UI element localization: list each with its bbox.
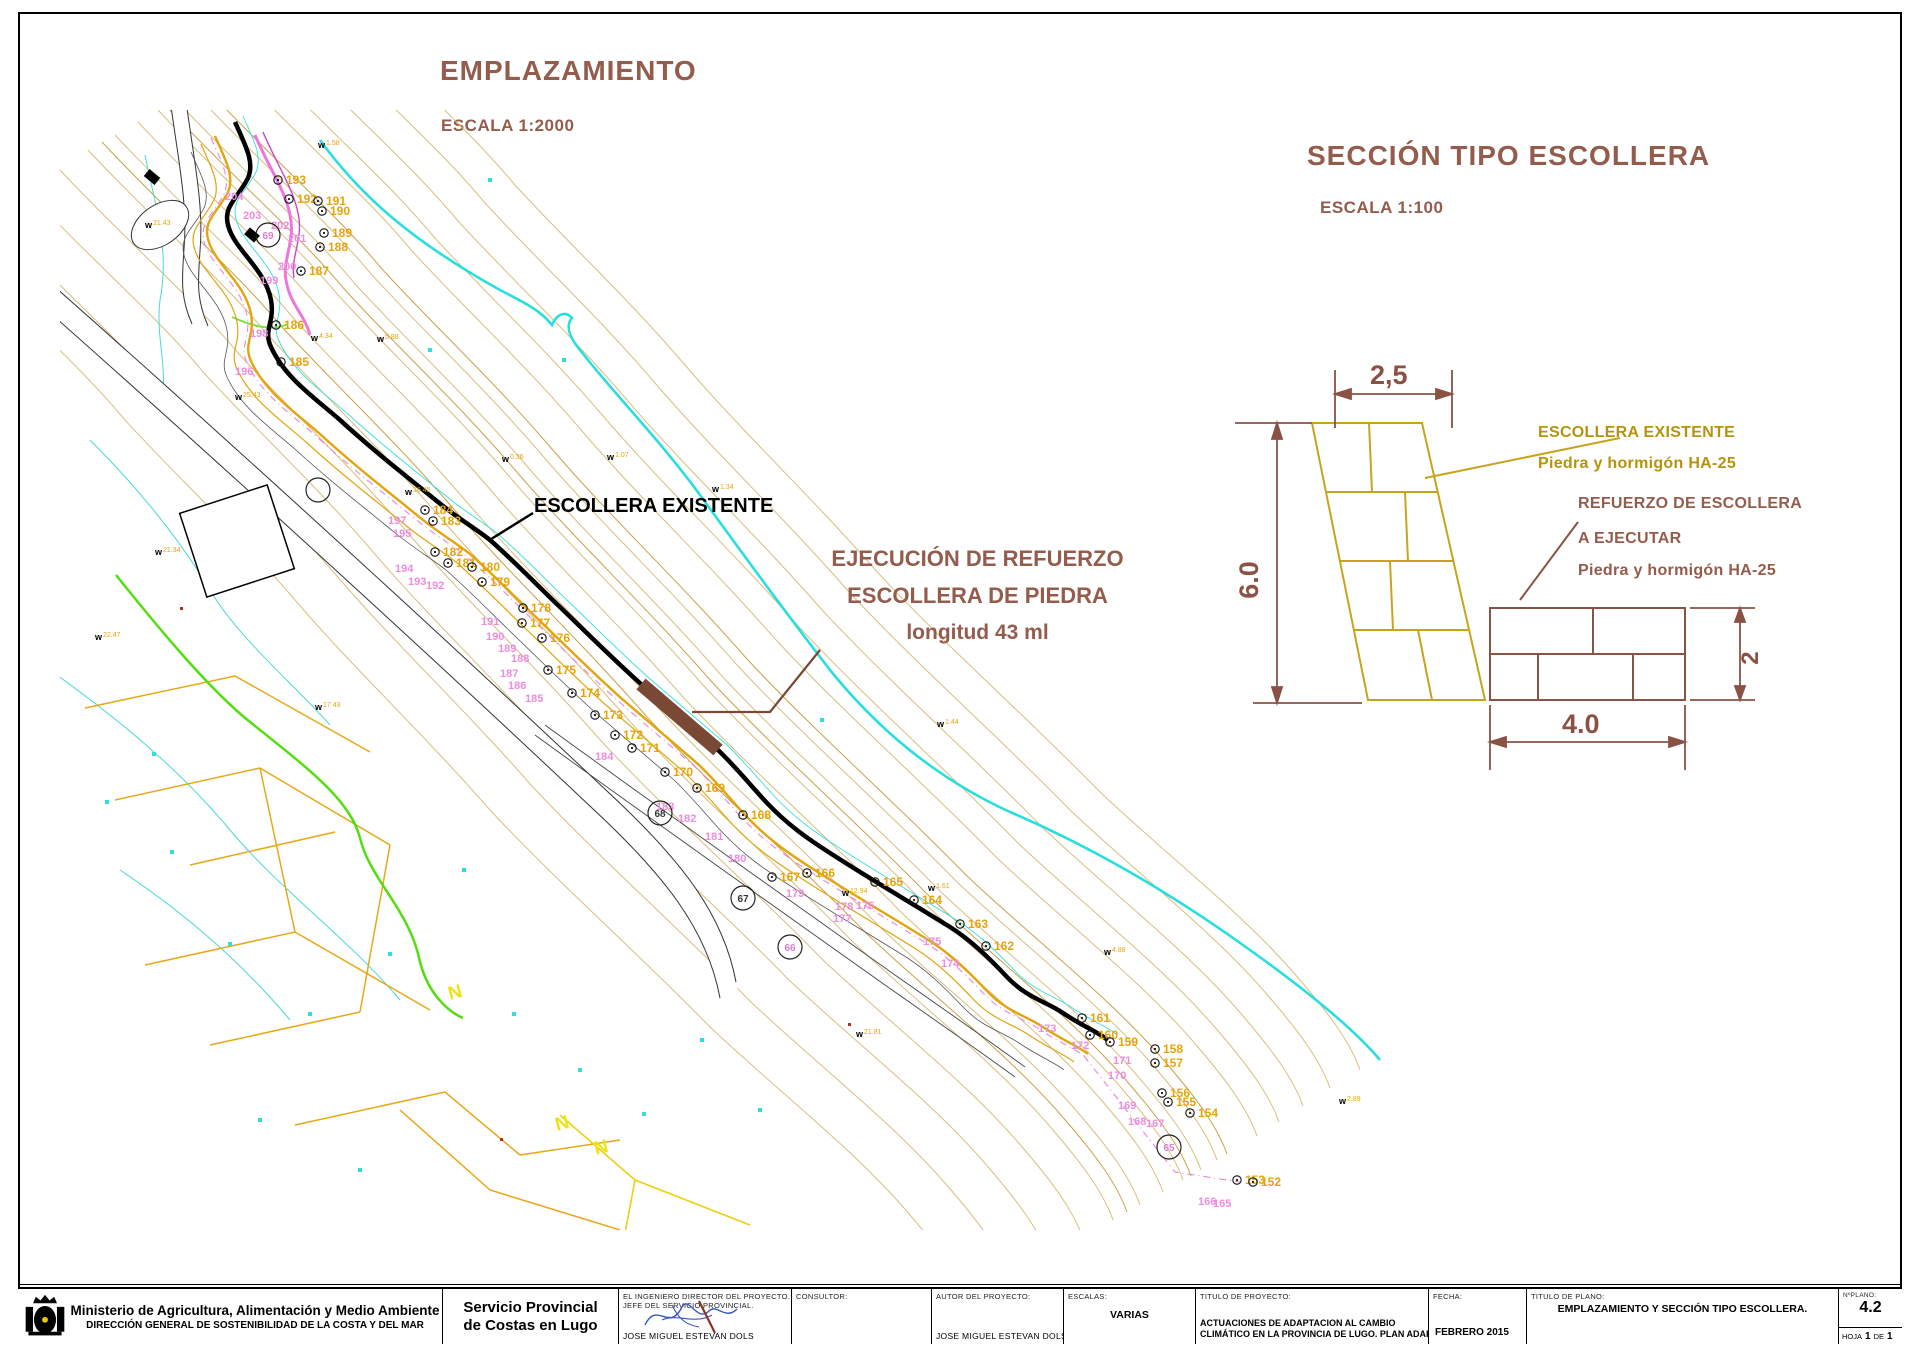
plano-num: 4.2 xyxy=(1839,1299,1902,1317)
profile-point-label: 168 xyxy=(1128,1116,1146,1128)
svg-text:152: 152 xyxy=(1261,1175,1281,1189)
svg-text:w: w xyxy=(317,140,326,150)
svg-text:w: w xyxy=(606,452,615,462)
callout-line1: EJECUCIÓN DE REFUERZO xyxy=(785,540,1170,577)
svg-text:w: w xyxy=(94,632,103,642)
survey-points-layer: 1931921911901891881871861851841831821811… xyxy=(94,140,1361,1210)
escalas-label: ESCALAS: xyxy=(1068,1292,1107,1301)
svg-text:21.34: 21.34 xyxy=(163,547,181,554)
svg-text:w: w xyxy=(927,883,936,893)
elevation-mark: w21.81 xyxy=(855,1029,882,1039)
profile-point-label: 203 xyxy=(243,210,261,222)
callout-line2: ESCOLLERA DE PIEDRA xyxy=(785,577,1170,614)
profile-point-label: 187 xyxy=(500,668,518,680)
svg-text:162: 162 xyxy=(994,939,1014,953)
profile-point-label: 176 xyxy=(856,900,874,912)
elevation-mark: w1.44 xyxy=(936,719,959,729)
escalas-value: VARIAS xyxy=(1064,1309,1195,1321)
svg-text:180: 180 xyxy=(480,560,500,574)
svg-text:185: 185 xyxy=(289,355,309,369)
dim-small-height: 2 xyxy=(1737,651,1764,664)
cyan-dot xyxy=(228,942,232,946)
cyan-dot xyxy=(388,952,392,956)
svg-text:w: w xyxy=(376,334,385,344)
escollera-label-leader xyxy=(488,513,533,541)
profile-point-label: 172 xyxy=(1071,1040,1089,1052)
survey-point: 155 xyxy=(1164,1095,1197,1109)
autor-cell: AUTOR DEL PROYECTO: JOSE MIGUEL ESTEVAN … xyxy=(931,1289,1063,1344)
elevation-mark: w4.88 xyxy=(1103,947,1126,957)
cyan-dot xyxy=(105,800,109,804)
svg-text:190: 190 xyxy=(330,204,350,218)
consultor-cell: CONSULTOR: xyxy=(791,1289,931,1344)
autor-label: AUTOR DEL PROYECTO: xyxy=(936,1292,1030,1301)
n-mark: N xyxy=(553,1112,572,1136)
svg-text:4.34: 4.34 xyxy=(319,333,333,340)
profile-point-label: 177 xyxy=(833,913,851,925)
circled-point: 69 xyxy=(256,223,280,247)
svg-text:173: 173 xyxy=(603,708,623,722)
titulo-plano-cell: TITULO DE PLANO: EMPLAZAMIENTO Y SECCIÓN… xyxy=(1526,1289,1838,1344)
ministry-text: Ministerio de Agricultura, Alimentación … xyxy=(68,1303,442,1331)
profile-point-label: 180 xyxy=(728,853,746,865)
svg-text:0.36: 0.36 xyxy=(510,454,524,461)
cyan-dot xyxy=(428,348,432,352)
svg-text:164: 164 xyxy=(922,893,942,907)
survey-point: 175 xyxy=(544,663,577,677)
titulo-proyecto-cell: TITULO DE PROYECTO: ACTUACIONES DE ADAPT… xyxy=(1195,1289,1428,1344)
svg-text:w: w xyxy=(936,719,945,729)
svg-text:158: 158 xyxy=(1163,1042,1183,1056)
svg-text:163: 163 xyxy=(968,917,988,931)
profile-point-label: 185 xyxy=(525,693,543,705)
upper-road xyxy=(122,110,208,326)
survey-point: 190 xyxy=(318,204,351,218)
cyan-dot xyxy=(578,1068,582,1072)
svg-text:21.43: 21.43 xyxy=(153,220,171,227)
dim-height: 6.0 xyxy=(1234,561,1264,599)
svg-text:174: 174 xyxy=(580,686,600,700)
survey-point: 188 xyxy=(316,240,349,254)
svg-text:25.43: 25.43 xyxy=(243,392,261,399)
svg-text:165: 165 xyxy=(883,875,903,889)
profile-point-label: 188 xyxy=(511,653,529,665)
profile-point-label: 165 xyxy=(1213,1198,1231,1210)
cyan-dot xyxy=(512,1012,516,1016)
survey-point: 162 xyxy=(982,939,1015,953)
profile-point-label: 178 xyxy=(835,901,853,913)
svg-text:170: 170 xyxy=(673,765,693,779)
fecha-label: FECHA: xyxy=(1433,1292,1462,1301)
svg-text:154: 154 xyxy=(1198,1106,1218,1120)
svg-text:2.89: 2.89 xyxy=(1347,1096,1361,1103)
profile-point-label: 175 xyxy=(923,936,941,948)
svg-text:1.61: 1.61 xyxy=(936,883,950,890)
svg-text:157: 157 xyxy=(1163,1056,1183,1070)
autor-name: JOSE MIGUEL ESTEVAN DOLS xyxy=(936,1331,1063,1341)
svg-text:w: w xyxy=(310,333,319,343)
survey-point: 173 xyxy=(591,708,624,722)
svg-text:22.47: 22.47 xyxy=(103,632,121,639)
elevation-mark: w1.61 xyxy=(927,883,950,893)
n-mark: N xyxy=(592,1136,611,1160)
elevation-mark: w12.94 xyxy=(841,888,868,898)
circled-point: 67 xyxy=(731,886,755,910)
svg-text:66: 66 xyxy=(784,943,796,954)
svg-text:w: w xyxy=(1103,947,1112,957)
elevation-mark: w2.89 xyxy=(1338,1096,1361,1106)
elevation-mark: w4.34 xyxy=(310,333,333,343)
titleblock: Ministerio de Agricultura, Alimentación … xyxy=(18,1287,1902,1344)
svg-text:w: w xyxy=(314,702,323,712)
cyan-dot xyxy=(820,718,824,722)
profile-point-label: 199 xyxy=(260,275,278,287)
svg-text:160: 160 xyxy=(1098,1028,1118,1042)
survey-point: 171 xyxy=(628,741,661,755)
svg-text:w: w xyxy=(154,547,163,557)
profile-point-label: 174 xyxy=(941,958,960,970)
sec-existente-label1: ESCOLLERA EXISTENTE xyxy=(1538,424,1735,442)
profile-point-label: 169 xyxy=(1118,1100,1136,1112)
svg-text:159: 159 xyxy=(1118,1035,1138,1049)
sec-existente-label2: Piedra y hormigón HA-25 xyxy=(1538,455,1736,473)
svg-text:188: 188 xyxy=(328,240,348,254)
svg-text:161: 161 xyxy=(1090,1011,1110,1025)
svg-text:69: 69 xyxy=(262,231,274,242)
sec-refuerzo-label3: Piedra y hormigón HA-25 xyxy=(1578,562,1776,580)
svg-text:1.58: 1.58 xyxy=(326,140,340,147)
fecha-cell: FECHA: FEBRERO 2015 xyxy=(1428,1289,1526,1344)
svg-text:178: 178 xyxy=(531,601,551,615)
titleblock-upper-rule xyxy=(18,1284,1902,1285)
refuerzo-leader xyxy=(1520,522,1578,600)
section-detail-drawing: 2,5 6.0 2 4.0 xyxy=(1200,330,1820,770)
profile-point-label: 196 xyxy=(235,366,253,378)
profile-point-label: 198 xyxy=(250,328,268,340)
elevation-mark: w17.43 xyxy=(314,702,341,712)
svg-text:172: 172 xyxy=(623,728,643,742)
svg-text:193: 193 xyxy=(286,173,306,187)
svg-text:12.94: 12.94 xyxy=(850,888,868,895)
profile-point-label: 202 xyxy=(271,220,289,232)
titulo-proyecto-text: ACTUACIONES DE ADAPTACION AL CAMBIO CLIM… xyxy=(1200,1318,1428,1340)
callout-line3: longitud 43 ml xyxy=(785,614,1170,651)
svg-text:169: 169 xyxy=(705,781,725,795)
dim-top-width: 2,5 xyxy=(1370,360,1408,390)
survey-point: 176 xyxy=(538,631,571,645)
reinforcement-block xyxy=(1490,608,1685,700)
servicio-cell: Servicio Provincial de Costas en Lugo xyxy=(442,1289,618,1344)
survey-point: 167 xyxy=(768,870,801,884)
svg-text:175: 175 xyxy=(556,663,576,677)
survey-point: 189 xyxy=(320,226,353,240)
svg-text:171: 171 xyxy=(640,741,660,755)
svg-text:21.81: 21.81 xyxy=(864,1029,882,1036)
svg-text:168: 168 xyxy=(751,808,771,822)
profile-point-label: 193 xyxy=(408,576,426,588)
svg-text:w: w xyxy=(144,220,153,230)
parcel-lines-bright xyxy=(560,1115,750,1230)
cyan-dot xyxy=(170,850,174,854)
profile-point-label: 181 xyxy=(705,831,723,843)
cyan-dot xyxy=(258,1118,262,1122)
profile-point-label: 195 xyxy=(393,528,411,540)
profile-point-label: 204 xyxy=(225,191,244,203)
svg-text:w: w xyxy=(841,888,850,898)
red-dot xyxy=(500,1138,503,1141)
survey-point: 174 xyxy=(568,686,601,700)
cyan-dot xyxy=(642,1112,646,1116)
survey-point: 177 xyxy=(518,616,551,630)
profile-point-label: 191 xyxy=(481,616,499,628)
svg-text:w: w xyxy=(855,1029,864,1039)
svg-text:67: 67 xyxy=(737,894,749,905)
survey-point: 192 xyxy=(285,192,318,206)
profile-point-label: 197 xyxy=(388,515,406,527)
svg-text:167: 167 xyxy=(780,870,800,884)
servicio-line1: Servicio Provincial xyxy=(443,1299,618,1317)
titulo-plano-label: TITULO DE PLANO: xyxy=(1531,1292,1605,1301)
fecha-value: FEBRERO 2015 xyxy=(1435,1327,1509,1338)
map-title: EMPLAZAMIENTO xyxy=(440,55,697,87)
svg-text:65: 65 xyxy=(1163,1143,1175,1154)
svg-text:1.07: 1.07 xyxy=(615,452,629,459)
profile-point-label: 170 xyxy=(1108,1070,1126,1082)
hoja-total: 1 xyxy=(1887,1331,1893,1342)
elevation-mark: w25.43 xyxy=(234,392,261,402)
svg-text:166: 166 xyxy=(815,866,835,880)
plano-num-label: NºPLANO: xyxy=(1843,1292,1876,1299)
profile-point-label: 171 xyxy=(1113,1055,1131,1067)
elevation-mark: w21.34 xyxy=(154,547,181,557)
consultor-label: CONSULTOR: xyxy=(796,1292,847,1301)
existing-wall xyxy=(1312,423,1485,700)
cyan-dot xyxy=(758,1108,762,1112)
ministry-cell: Ministerio de Agricultura, Alimentación … xyxy=(18,1289,442,1344)
profile-point-label: 190 xyxy=(486,631,504,643)
elevation-mark: w1.07 xyxy=(606,452,629,462)
svg-text:176: 176 xyxy=(550,631,570,645)
svg-text:w: w xyxy=(501,454,510,464)
svg-text:68: 68 xyxy=(654,809,666,820)
red-dot xyxy=(180,607,183,610)
sec-refuerzo-label1: REFUERZO DE ESCOLLERA xyxy=(1578,495,1802,513)
elevation-mark: w1.34 xyxy=(711,484,734,494)
cyan-dot xyxy=(358,1168,362,1172)
titulo-proyecto-line1: ACTUACIONES DE ADAPTACION AL CAMBIO xyxy=(1200,1318,1428,1329)
hoja-row: HOJA 1 DE 1 xyxy=(1839,1327,1902,1344)
cyan-dot xyxy=(700,1038,704,1042)
ministry-direction: DIRECCIÓN GENERAL DE SOSTENIBILIDAD DE L… xyxy=(68,1320,442,1331)
cyan-dot xyxy=(308,1012,312,1016)
escalas-cell: ESCALAS: VARIAS xyxy=(1063,1289,1195,1344)
svg-text:w: w xyxy=(711,484,720,494)
n-mark: N xyxy=(446,981,465,1005)
titulo-proyecto-line2: CLIMÁTICO EN LA PROVINCIA DE LUGO. PLAN … xyxy=(1200,1329,1428,1340)
svg-text:16.45: 16.45 xyxy=(413,487,431,494)
svg-text:183: 183 xyxy=(441,514,461,528)
cyan-dot xyxy=(462,868,466,872)
map-escollera-label: ESCOLLERA EXISTENTE xyxy=(534,495,773,518)
svg-text:155: 155 xyxy=(1176,1095,1196,1109)
spain-coat-of-arms-icon xyxy=(22,1294,68,1340)
hoja-label: HOJA xyxy=(1842,1332,1862,1341)
profile-point-label: 173 xyxy=(1038,1023,1056,1035)
de-label: DE xyxy=(1874,1332,1884,1341)
servicio-line2: de Costas en Lugo xyxy=(443,1317,618,1335)
sec-refuerzo-label2: A EJECUTAR xyxy=(1578,530,1681,548)
svg-text:w: w xyxy=(234,392,243,402)
engineer-cell: EL INGENIERO DIRECTOR DEL PROYECTO. JEFE… xyxy=(618,1289,791,1344)
survey-point: 163 xyxy=(956,917,989,931)
profile-point-label: 192 xyxy=(426,580,444,592)
signature xyxy=(637,1295,757,1335)
red-dot xyxy=(848,1023,851,1026)
svg-text:189: 189 xyxy=(332,226,352,240)
engineer-name: JOSE MIGUEL ESTEVAN DOLS xyxy=(623,1331,754,1341)
map-refuerzo-callout: EJECUCIÓN DE REFUERZO ESCOLLERA DE PIEDR… xyxy=(785,540,1170,651)
elevation-mark: w0.36 xyxy=(501,454,524,464)
dim-bottom-width: 4.0 xyxy=(1562,709,1600,739)
main-road xyxy=(60,272,736,998)
svg-text:177: 177 xyxy=(530,616,550,630)
svg-text:17.43: 17.43 xyxy=(323,702,341,709)
cyan-dot xyxy=(152,752,156,756)
plano-number-cell: NºPLANO: 4.2 HOJA 1 DE 1 xyxy=(1838,1289,1902,1344)
survey-point: 169 xyxy=(693,781,726,795)
svg-text:5.88: 5.88 xyxy=(385,334,399,341)
svg-text:w: w xyxy=(1338,1096,1347,1106)
profile-point-label: 201 xyxy=(288,233,306,245)
survey-point: 158 xyxy=(1151,1042,1184,1056)
hoja-num: 1 xyxy=(1865,1331,1871,1342)
svg-text:179: 179 xyxy=(490,575,510,589)
svg-text:w: w xyxy=(404,487,413,497)
circled-point xyxy=(306,478,330,502)
profile-point-label: 179 xyxy=(786,888,804,900)
profile-point-label: 167 xyxy=(1146,1118,1164,1130)
profile-point-label: 184 xyxy=(595,751,614,763)
drawing-sheet: EMPLAZAMIENTO ESCALA 1:2000 SECCIÓN TIPO… xyxy=(0,0,1920,1357)
profile-point-label: 182 xyxy=(678,813,696,825)
survey-point: 187 xyxy=(297,264,330,278)
elevation-mark: w1.58 xyxy=(317,140,340,150)
profile-point-label: 186 xyxy=(508,680,526,692)
titulo-proyecto-label: TITULO DE PROYECTO: xyxy=(1200,1292,1291,1301)
green-lines xyxy=(116,317,463,1018)
cyan-dot xyxy=(488,178,492,182)
svg-text:4.88: 4.88 xyxy=(1112,947,1126,954)
cyan-dot xyxy=(562,358,566,362)
circled-point: 66 xyxy=(778,935,802,959)
svg-text:1.44: 1.44 xyxy=(945,719,959,726)
survey-point: 178 xyxy=(519,601,552,615)
survey-point: 166 xyxy=(803,866,836,880)
elevation-mark: w22.47 xyxy=(94,632,121,642)
svg-text:186: 186 xyxy=(284,318,304,332)
titulo-plano-value: EMPLAZAMIENTO Y SECCIÓN TIPO ESCOLLERA. xyxy=(1527,1303,1838,1315)
building xyxy=(144,169,161,185)
ministry-name: Ministerio de Agricultura, Alimentación … xyxy=(68,1303,442,1318)
svg-text:1.34: 1.34 xyxy=(720,484,734,491)
survey-point: 170 xyxy=(661,765,694,779)
profile-point-label: 200 xyxy=(278,261,296,273)
profile-point-label: 194 xyxy=(395,563,414,575)
svg-text:187: 187 xyxy=(309,264,329,278)
